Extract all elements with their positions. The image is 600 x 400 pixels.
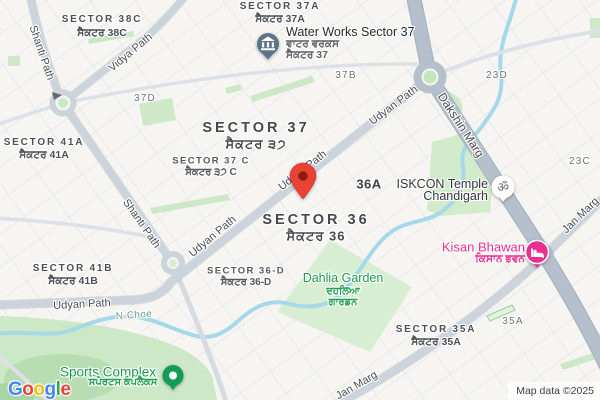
kisan-bhawan-bed-icon[interactable] — [523, 239, 551, 271]
water-works-icon[interactable] — [256, 32, 280, 60]
sports-complex-park-icon[interactable] — [161, 364, 185, 392]
svg-text:ॐ: ॐ — [497, 181, 509, 196]
destination-pin-icon[interactable] — [288, 160, 318, 202]
google-logo[interactable]: Google — [8, 379, 70, 400]
map-canvas[interactable]: SECTOR 38C ਸੈਕਟਰ 38C SECTOR 37A ਸੈਕਟਰ 37… — [0, 0, 600, 400]
map-attribution: Map data ©2025 — [508, 382, 600, 400]
iskcon-om-icon[interactable]: ॐ — [490, 174, 516, 204]
